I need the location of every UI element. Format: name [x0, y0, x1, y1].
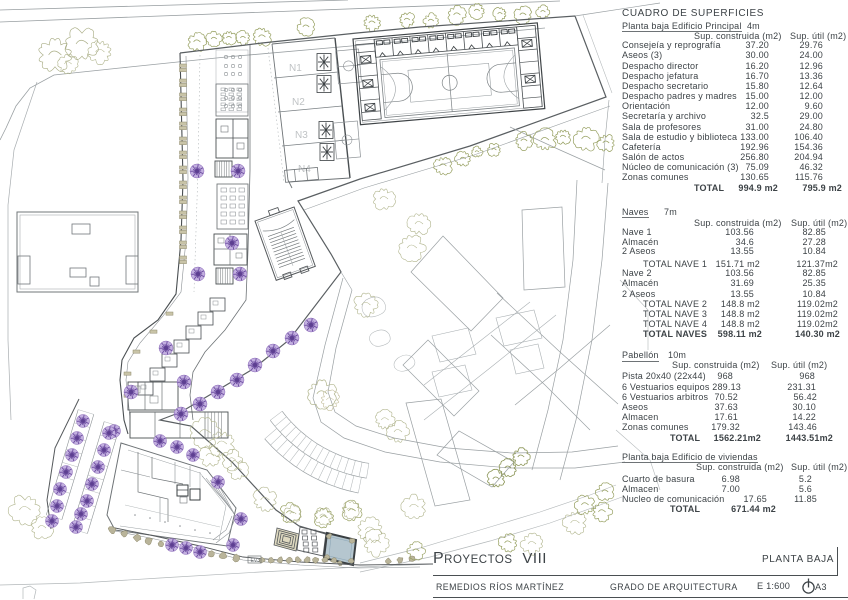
svg-text:N3: N3 [295, 130, 308, 141]
svg-text:N1: N1 [289, 63, 302, 74]
svg-text:N4: N4 [298, 164, 311, 175]
svg-text:N2: N2 [292, 97, 305, 108]
svg-text:EV3: EV3 [251, 558, 261, 564]
